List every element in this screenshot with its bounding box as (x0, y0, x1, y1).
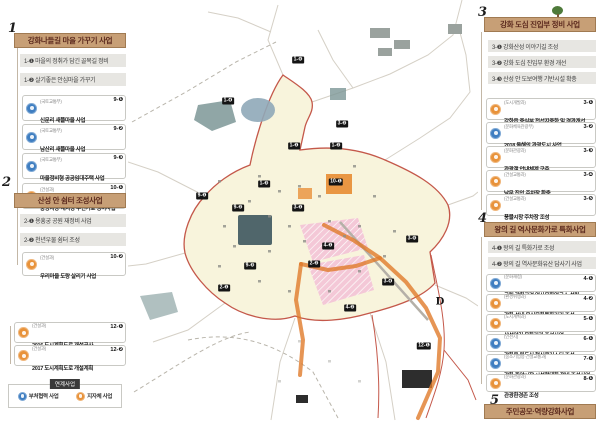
map-code-badge: 3-❹ (583, 172, 593, 178)
dark-block (402, 370, 432, 388)
card-dept: (국토교통부) (40, 157, 62, 162)
map-marker: 9-❸ (244, 263, 256, 270)
section-2-header: 산성 안 쉼터 조성사업 (14, 193, 126, 208)
map-marker: 2-❷ (308, 261, 320, 268)
local-gov-icon (26, 259, 37, 270)
project-card: (건설과) 2017 도시계획도로 개설계획 12-❷ (14, 345, 126, 366)
map-code-badge: 5-❶ (583, 316, 593, 322)
ministry-icon (490, 358, 501, 369)
city-plan-map: 1-❺1-❹3-❷1-❶1-❷1-❸10-❶9-❶9-❷3-❶4-❶3-❺9-❸… (128, 0, 478, 422)
local-gov-icon (490, 176, 501, 187)
local-gov-icon (490, 318, 501, 329)
card-dept: (환경위생과) (504, 294, 526, 299)
local-gov-icon (490, 298, 501, 309)
map-code-badge: 9-❷ (113, 126, 123, 132)
card-dept: (인천시) (504, 334, 518, 339)
card-dept: (국토교통부) (40, 128, 62, 133)
card-dept: (건설과) (40, 255, 54, 260)
ministry-icon (18, 392, 27, 401)
map-marker: 3-❶ (292, 205, 304, 212)
card-name: 풍물시장 주차장 조성 (504, 215, 549, 221)
section-2-sub-item: 2-❶ 용흥궁 공원 재정비 사업 (20, 214, 126, 227)
card-dept: (도시개발과) (504, 100, 526, 105)
map-marker: 1-❸ (258, 181, 270, 188)
map-marker: 4-❷ (344, 305, 356, 312)
map-marker: 2-❶ (218, 285, 230, 292)
map-code-badge: 9-❶ (113, 97, 123, 103)
ministry-icon (490, 278, 501, 289)
local-gov-icon (490, 378, 501, 389)
section-4-header: 왕의 길 역사문화가로 특화사업 (484, 222, 596, 237)
ministry-icon (490, 338, 501, 349)
card-name: 관광환경존 조성 (504, 393, 539, 399)
map-code-badge: 10-❶ (110, 185, 123, 191)
connector-line (481, 32, 482, 210)
connector-line (17, 208, 18, 265)
map-marker: 10-❶ (329, 179, 343, 186)
ministry-icon (26, 103, 37, 114)
card-dept: (문화재청) (504, 274, 522, 279)
connector-line (17, 48, 18, 198)
legend-label: 지자체 사업 (87, 392, 112, 400)
section-2-numeral: 2 (2, 176, 11, 189)
map-code-badge: 9-❸ (113, 155, 123, 161)
card-dept: (중소기업청·건설교통과) (504, 354, 546, 359)
section-3-sub-item: 3-❶ 강화산성 이야기길 조성 (488, 40, 596, 52)
ministry-icon (490, 128, 501, 139)
connector-line (10, 326, 11, 364)
map-code-badge: 12-❷ (110, 347, 123, 353)
project-card: (건설과) 우리마을 도랑 살리기 사업 10-❷ (22, 252, 126, 276)
card-dept: (문화관광과) (504, 148, 526, 153)
card-dept: (건설교통과) (504, 172, 526, 177)
map-code-badge: 3-❷ (583, 124, 593, 130)
legend-box: 연계사업 부처협력 사업 지자체 사업 (8, 384, 122, 408)
section-5-header: 주민공모·역량강화사업 (484, 404, 596, 419)
local-gov-icon (18, 350, 29, 361)
map-code-badge: 3-❺ (583, 196, 593, 202)
map-marker: 9-❶ (196, 193, 208, 200)
card-name: 우리마을 도랑 살리기 사업 (40, 274, 96, 280)
map-code-badge: 6-❶ (583, 336, 593, 342)
card-name: 2017 도시계획도로 개설계획 (32, 366, 93, 372)
connector-line (481, 237, 482, 384)
map-code-badge: 4-❶ (583, 276, 593, 282)
map-marker: 9-❷ (232, 205, 244, 212)
local-gov-icon (76, 392, 85, 401)
legend-entry-ministry: 부처협력 사업 (18, 392, 59, 401)
project-card: (국토교통부) 마을정비형 공공임대주택 사업 9-❸ (22, 153, 126, 179)
local-gov-icon (18, 327, 29, 338)
legend-label: 부처협력 사업 (29, 392, 59, 400)
map-marker: 1-❶ (288, 143, 300, 150)
map-code-badge: 10-❷ (110, 254, 123, 260)
section-3-sub-item: 3-❷ 강화 도심 진입부 환경 개선 (488, 56, 596, 68)
map-code-badge: 12-❶ (110, 324, 123, 330)
ministry-icon (26, 161, 37, 172)
map-code-badge: 8-❶ (583, 376, 593, 382)
map-code-badge: 3-❶ (583, 100, 593, 106)
card-dept: (건설과) (32, 323, 46, 328)
map-marker: 3-❹ (382, 279, 394, 286)
section-1-sub-item: 1-❶ 마을의 정취가 담긴 골목길 정비 (20, 54, 126, 67)
card-dept: (도시계획과) (504, 314, 526, 319)
card-dept: (건설과) (40, 187, 54, 192)
section-1-header: 강화나들길 마을 가꾸기 사업 (14, 33, 126, 48)
project-card: (문화관광과) 관광환경존 조성 8-❶ (486, 374, 596, 392)
local-gov-icon (490, 200, 501, 211)
palace-site (238, 215, 272, 245)
map-marker: 1-❺ (292, 57, 304, 64)
card-dept: (문화체육관광부) (504, 124, 533, 129)
card-dept: (건설과) (32, 346, 46, 351)
map-marker: 12-❶ (417, 343, 431, 350)
map-marker: 1-❹ (222, 98, 234, 105)
project-card: (건설교통과) 풍물시장 주차장 조성 3-❺ (486, 194, 596, 216)
map-code-badge: 7-❶ (583, 356, 593, 362)
legend-title: 연계사업 (50, 379, 80, 389)
map-code-badge: 4-❷ (583, 296, 593, 302)
card-dept: (건설교통과) (504, 196, 526, 201)
local-gov-icon (490, 152, 501, 163)
map-marker: 3-❷ (336, 121, 348, 128)
map-marker: 3-❺ (406, 236, 418, 243)
card-dept: (문화관광과) (504, 374, 526, 379)
ministry-icon (26, 132, 37, 143)
section-1-sub-item: 1-❷ 살기좋은 안심마을 가꾸기 (20, 73, 126, 86)
section-3-header: 강화 도심 진입부 정비 사업 (484, 17, 596, 32)
legend-entry-local: 지자체 사업 (76, 392, 112, 401)
section-4-sub-item: 4-❶ 왕의 길 특화가로 조성 (488, 241, 596, 253)
section-3-sub-item: 3-❸ 산성 안 도보여행 기반시설 확충 (488, 72, 596, 84)
card-dept: (국토교통부) (40, 99, 62, 104)
map-code-badge: 3-❸ (583, 148, 593, 154)
map-marker: 4-❶ (322, 243, 334, 250)
local-gov-icon (490, 104, 501, 115)
map-marker: 1-❷ (330, 143, 342, 150)
map-letter-marker: D (434, 299, 446, 306)
pond (241, 98, 275, 122)
